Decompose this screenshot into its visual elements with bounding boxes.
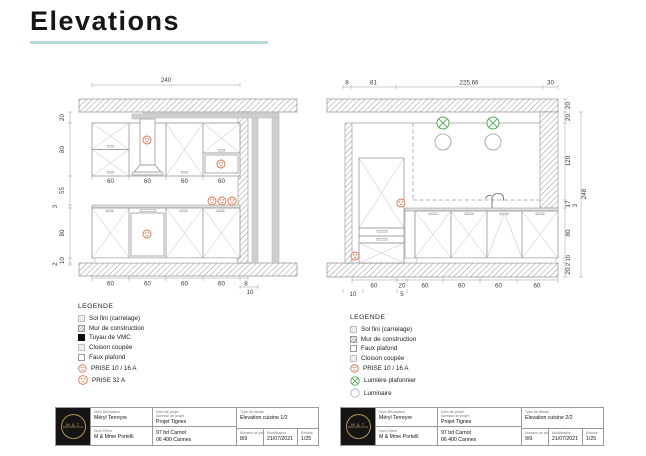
base-cabinets — [92, 208, 240, 258]
legend-label: Cloison coupée — [89, 344, 132, 351]
titleblock-names-column: Nom Décorateur Méryl Terreyre Nom Client… — [375, 408, 437, 445]
address-line1: 97 bd Carnot — [441, 430, 518, 437]
page-cell: Numéro de page 9/9 — [522, 428, 548, 445]
floor-slab-hatch — [79, 263, 297, 276]
address-label: Adresse de projet — [156, 414, 233, 418]
modification-date: 21/07/2021 — [267, 436, 294, 443]
dim-right-6: 20 — [565, 267, 572, 274]
scale-value: 1/25 — [586, 436, 600, 443]
dim-side-3: 3 — [52, 204, 59, 208]
base-cabinets — [415, 211, 558, 258]
titleblock-drawing-column: Type de dessin Elevation cuisine 2/2 Num… — [521, 408, 603, 445]
page-number: 9/9 — [525, 436, 545, 443]
designer-name: Méryl Terreyre — [379, 415, 434, 422]
client-label: Nom Client — [379, 429, 434, 433]
legend-label: PRISE 32 A — [92, 377, 125, 384]
legend-item: PRISE 10 / 16 A — [78, 364, 144, 374]
designer-label: Nom Décorateur — [379, 410, 434, 414]
legend-item: Lumière plafonnier — [350, 376, 416, 386]
faucet-symbol — [486, 194, 504, 209]
worktop — [405, 208, 558, 211]
modification-cell: Modification 21/07/2021 — [263, 428, 297, 445]
dim-side-0: 20 — [59, 114, 66, 121]
plinth — [95, 258, 237, 263]
dim-worktop: 3 — [572, 203, 579, 207]
project-cell: Nom de projet Adresse de projet Projet T… — [153, 408, 236, 426]
legend-label: Mur de construction — [361, 336, 416, 343]
legend-item: Cloison coupée — [78, 343, 144, 353]
titleblock-project-column: Nom de projet Adresse de projet Projet T… — [437, 408, 521, 445]
legend-item: Cloison coupée — [350, 354, 416, 364]
drawing-type: Elevation cuisine 2/2 — [525, 415, 600, 422]
faux-plafond-swatch-icon — [78, 354, 85, 361]
dim-lower-w0: 60 — [107, 281, 114, 288]
project-cell: Nom de projet Adresse de projet Projet T… — [438, 408, 521, 426]
wall-hatch-left — [345, 123, 352, 263]
address-line2: 06 400 Cannes — [156, 437, 233, 444]
drawing-type-label: Type de dessin — [525, 410, 600, 414]
dim-total-height: 248 — [581, 188, 588, 199]
client-name: M & Mme Portelli — [379, 434, 434, 441]
dim-bot-5: 60 — [534, 283, 541, 290]
dim-side-5: 10 — [59, 257, 66, 264]
legend-item: Mur de construction — [350, 335, 416, 345]
plafonnier-icon — [350, 376, 360, 386]
legend-item: Sol fini (carrelage) — [78, 314, 144, 324]
titleblock-names-column: Nom Décorateur Méryl Terreyre Nom Client… — [90, 408, 152, 445]
worktop — [92, 205, 240, 208]
ceiling-slab-hatch — [327, 99, 558, 112]
dim-right-2: 120 — [565, 155, 572, 166]
dim-lower-w3: 60 — [218, 281, 225, 288]
legend-item: Mur de construction — [78, 324, 144, 334]
address-line1: 97 bd Carnot — [156, 430, 233, 437]
legend-label: PRISE 10 / 16 A — [363, 365, 409, 372]
dim-end-10: 10 — [247, 289, 254, 296]
client-label: Nom Client — [94, 429, 149, 433]
designer-label: Nom Décorateur — [94, 410, 149, 414]
sol-fini-swatch-icon — [78, 315, 85, 322]
dim-right-4: 80 — [565, 229, 572, 236]
company-logo: M & T DÉCORATION — [56, 408, 90, 445]
legend-title: LEGENDE — [350, 314, 416, 321]
legend-left: LEGENDE Sol fini (carrelage) Mur de cons… — [78, 303, 144, 385]
dim-side-1: 80 — [59, 146, 66, 153]
legend-label: Faux plafond — [361, 345, 397, 352]
logo-circle: M & T DÉCORATION — [346, 414, 371, 439]
drawing-type-label: Type de dessin — [240, 410, 315, 414]
page-number: 8/9 — [240, 436, 260, 443]
dim-right-1: 20 — [565, 114, 572, 121]
mur-construction-swatch-icon — [78, 325, 85, 332]
client-cell: Nom Client M & Mme Portelli — [91, 426, 152, 445]
dim-top: 240 — [161, 77, 172, 84]
dim-side-2: 55 — [59, 187, 66, 194]
dim-side-4: 80 — [59, 229, 66, 236]
dim-right-0: 20 — [565, 102, 572, 109]
dim-bot-off-0: 10 — [350, 291, 357, 298]
page-title: Elevations — [30, 6, 180, 37]
scale-label: Echelle — [301, 431, 315, 435]
modification-label: Modification — [267, 431, 294, 435]
address-line2: 06 400 Cannes — [441, 437, 518, 444]
address-cell: 97 bd Carnot 06 400 Cannes — [153, 426, 236, 445]
tuyau-vmc-swatch-icon — [78, 334, 85, 341]
address-label: Adresse de projet — [441, 414, 518, 418]
legend-label: Cloison coupée — [361, 355, 404, 362]
dim-bot-4: 60 — [495, 283, 502, 290]
legend-item: PRISE 32 A — [78, 376, 144, 386]
dim-end-8: 8 — [244, 281, 248, 288]
page-label: Numéro de page — [525, 431, 545, 435]
drawing-meta-row: Numéro de page 9/9 Modification 21/07/20… — [522, 428, 603, 445]
logo-subtext: DÉCORATION — [63, 427, 83, 430]
dim-bot-off-1: 5 — [400, 291, 404, 298]
prise-icon — [350, 364, 359, 373]
designer-cell: Nom Décorateur Méryl Terreyre — [91, 408, 152, 426]
faux-plafond-strip — [143, 113, 279, 118]
wall-hatch-right — [540, 112, 558, 208]
faux-plafond-swatch-icon — [350, 345, 357, 352]
legend-label: Tuyau de VMC — [89, 334, 131, 341]
dim-lower-w2: 60 — [181, 281, 188, 288]
dim-upper-w0: 60 — [107, 178, 114, 185]
cloison-coupee-swatch-icon — [350, 355, 357, 362]
dim-upper-w1: 60 — [144, 178, 151, 185]
legend-label: Sol fini (carrelage) — [361, 326, 412, 333]
scale-value: 1/25 — [301, 436, 315, 443]
legend-label: Luminaire — [364, 390, 392, 397]
drawing-type-cell: Type de dessin Elevation cuisine 2/2 — [522, 408, 603, 428]
ceiling-slab-hatch — [79, 99, 297, 112]
dim-bot-1: 20 — [399, 283, 406, 290]
legend-item: Luminaire — [350, 389, 416, 399]
modification-date: 21/07/2021 — [552, 436, 579, 443]
address-cell: 97 bd Carnot 06 400 Cannes — [438, 426, 521, 445]
cloison-coupee-swatch-icon — [78, 344, 85, 351]
cloison-coupee-dashed — [413, 123, 540, 200]
filler-panel — [405, 211, 415, 258]
plinth — [417, 258, 556, 263]
cloison-strip-2 — [272, 116, 279, 263]
drawing-sheet: Elevations — [0, 0, 646, 456]
client-name: M & Mme Portelli — [94, 434, 149, 441]
legend-title: LEGENDE — [78, 303, 144, 310]
project-name: Projet Tignes — [156, 419, 233, 426]
dim-top-2: 225,66 — [460, 80, 479, 87]
sol-fini-swatch-icon — [350, 326, 357, 333]
dim-side-6: 2 — [52, 262, 59, 266]
logo-subtext: DÉCORATION — [348, 427, 368, 430]
elevation-drawing-right: 8 81 225,66 30 60 20 60 60 60 60 10 5 20… — [325, 60, 646, 305]
drawing-type: Elevation cuisine 1/2 — [240, 415, 315, 422]
logo-circle: M & T DÉCORATION — [61, 414, 86, 439]
titleblock-left: M & T DÉCORATION Nom Décorateur Méryl Te… — [55, 407, 319, 446]
dim-bot-2: 60 — [422, 283, 429, 290]
company-logo: M & T DÉCORATION — [341, 408, 375, 445]
project-name: Projet Tignes — [441, 419, 518, 426]
title-underline — [30, 41, 268, 44]
luminaire-icon — [350, 388, 360, 398]
legend-label: PRISE 10 / 16 A — [91, 365, 137, 372]
modification-cell: Modification 21/07/2021 — [548, 428, 582, 445]
dim-right-5: 2 10 — [566, 255, 572, 266]
scale-label: Echelle — [586, 431, 600, 435]
legend-item: PRISE 10 / 16 A — [350, 363, 416, 373]
legend-right: LEGENDE Sol fini (carrelage) Mur de cons… — [350, 314, 416, 398]
dim-upper-w2: 60 — [181, 178, 188, 185]
cloison-strip-1 — [252, 116, 258, 263]
designer-cell: Nom Décorateur Méryl Terreyre — [376, 408, 437, 426]
mur-construction-swatch-icon — [350, 336, 357, 343]
designer-name: Méryl Terreyre — [94, 415, 149, 422]
dim-bot-3: 60 — [458, 283, 465, 290]
dim-top-3: 30 — [547, 80, 554, 87]
titleblock-right: M & T DÉCORATION Nom Décorateur Méryl Te… — [340, 407, 604, 446]
elevation-drawing-left: 240 60 60 60 60 60 60 60 60 8 10 20 80 5… — [42, 70, 322, 305]
dim-top-0: 8 — [345, 80, 349, 87]
dim-upper-w3: 60 — [218, 178, 225, 185]
legend-label: Mur de construction — [89, 325, 144, 332]
dim-top-1: 81 — [370, 80, 377, 87]
client-cell: Nom Client M & Mme Portelli — [376, 426, 437, 445]
legend-label: Faux plafond — [89, 354, 125, 361]
tall-cabinet — [359, 158, 404, 263]
legend-item: Faux plafond — [78, 352, 144, 362]
dim-lower-w1: 60 — [144, 281, 151, 288]
page-cell: Numéro de page 8/9 — [237, 428, 263, 445]
prise32-icon — [78, 375, 88, 385]
scale-cell: Echelle 1/25 — [582, 428, 603, 445]
floor-slab-hatch — [327, 263, 558, 277]
dim-right-3: 17 — [565, 200, 572, 207]
page-label: Numéro de page — [240, 431, 260, 435]
luminaire-pendants — [435, 134, 501, 150]
scale-cell: Echelle 1/25 — [297, 428, 318, 445]
titleblock-project-column: Nom de projet Adresse de projet Projet T… — [152, 408, 236, 445]
modification-label: Modification — [552, 431, 579, 435]
legend-label: Sol fini (carrelage) — [89, 315, 140, 322]
titleblock-drawing-column: Type de dessin Elevation cuisine 1/2 Num… — [236, 408, 318, 445]
drawing-meta-row: Numéro de page 8/9 Modification 21/07/20… — [237, 428, 318, 445]
dim-bot-0: 60 — [371, 283, 378, 290]
legend-item: Faux plafond — [350, 344, 416, 354]
legend-item: Sol fini (carrelage) — [350, 325, 416, 335]
legend-item: Tuyau de VMC — [78, 333, 144, 343]
prise-icon — [78, 364, 87, 373]
drawing-type-cell: Type de dessin Elevation cuisine 1/2 — [237, 408, 318, 428]
legend-label: Lumière plafonnier — [364, 377, 416, 384]
